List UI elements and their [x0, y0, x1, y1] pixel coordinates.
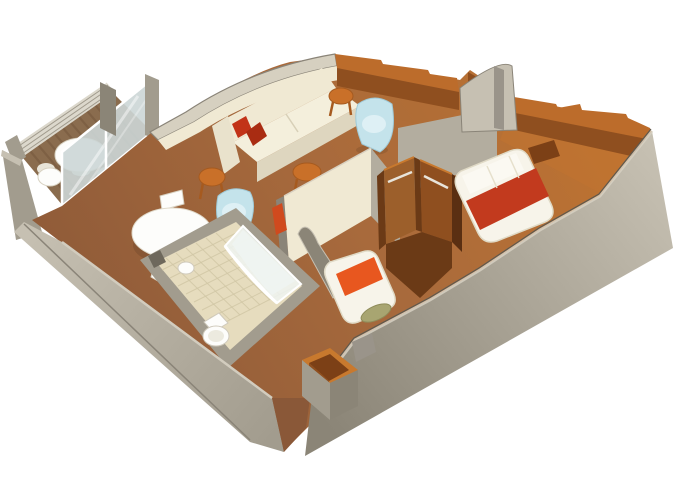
- partition-post: [494, 66, 504, 130]
- bathroom-sink: [178, 262, 194, 274]
- stool-top: [329, 88, 353, 104]
- glass-door-corner-post: [100, 82, 116, 136]
- floorplan-illustration: [0, 0, 680, 484]
- balcony-chair-seat: [38, 168, 62, 186]
- chair-seat: [362, 115, 386, 133]
- wardrobe-interior-left: [384, 157, 416, 244]
- stool-top: [199, 168, 225, 186]
- toilet-seat: [208, 330, 224, 342]
- floorplan-stage: [0, 0, 680, 484]
